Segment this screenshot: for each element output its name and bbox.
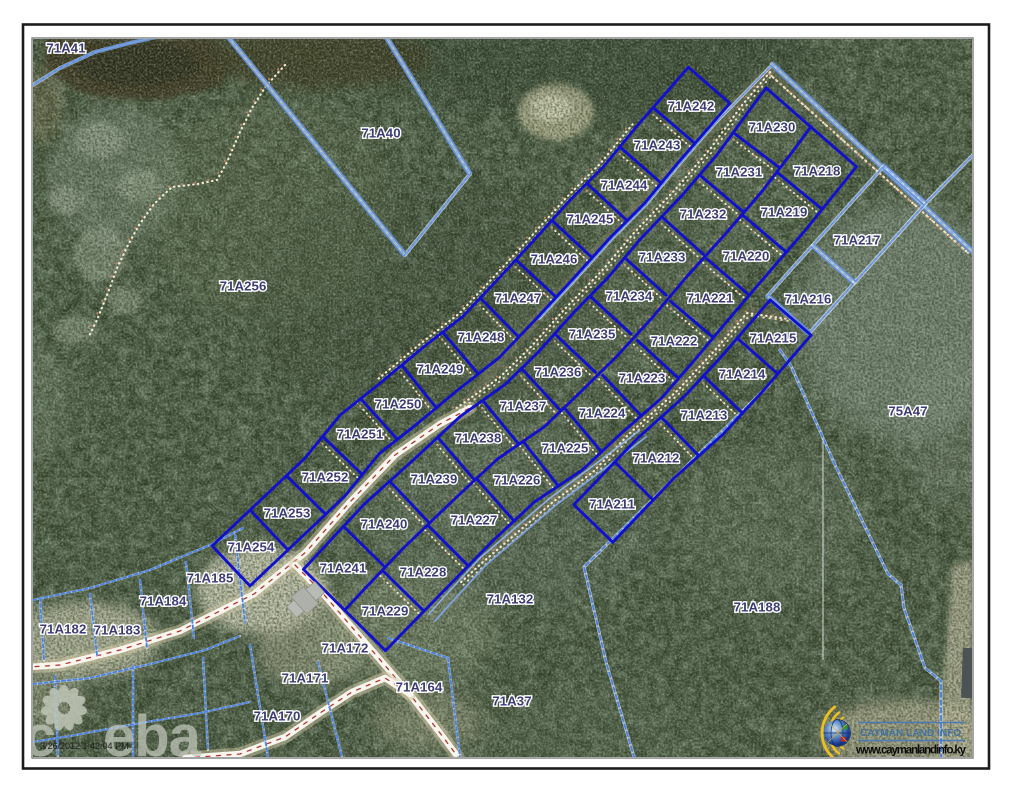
svg-text:71A222: 71A222 [651, 334, 698, 349]
svg-text:71A228: 71A228 [400, 565, 447, 580]
svg-text:71A253: 71A253 [264, 506, 311, 521]
svg-text:71A246: 71A246 [531, 252, 578, 267]
svg-text:71A256: 71A256 [220, 279, 267, 294]
svg-text:75A47: 75A47 [888, 404, 927, 419]
svg-text:71A250: 71A250 [375, 397, 422, 412]
svg-text:71A225: 71A225 [542, 441, 589, 456]
svg-text:71A234: 71A234 [606, 289, 653, 304]
svg-text:3/26/2012 1:42:04 PM: 3/26/2012 1:42:04 PM [40, 741, 129, 751]
svg-text:71A211: 71A211 [589, 497, 635, 512]
svg-text:71A235: 71A235 [569, 327, 616, 342]
svg-text:71A229: 71A229 [362, 604, 409, 619]
svg-text:71A224: 71A224 [579, 406, 626, 421]
svg-text:71A230: 71A230 [749, 120, 796, 135]
svg-text:71A237: 71A237 [500, 399, 547, 414]
svg-text:71A245: 71A245 [567, 212, 614, 227]
svg-text:71A183: 71A183 [94, 623, 141, 638]
svg-text:71A132: 71A132 [487, 592, 534, 607]
svg-text:71A182: 71A182 [40, 622, 87, 637]
svg-text:71A218: 71A218 [794, 164, 841, 179]
svg-text:71A217: 71A217 [834, 233, 881, 248]
svg-text:71A240: 71A240 [361, 517, 408, 532]
svg-text:71A184: 71A184 [140, 594, 187, 609]
svg-text:CAYMAN LAND INFO: CAYMAN LAND INFO [860, 728, 962, 739]
svg-text:71A41: 71A41 [46, 41, 85, 56]
svg-text:71A214: 71A214 [719, 367, 766, 382]
svg-text:71A243: 71A243 [634, 138, 681, 153]
svg-text:71A40: 71A40 [361, 126, 400, 141]
svg-text:71A164: 71A164 [396, 680, 443, 695]
svg-text:71A238: 71A238 [455, 431, 502, 446]
svg-text:71A220: 71A220 [723, 249, 770, 264]
svg-text:71A215: 71A215 [750, 331, 797, 346]
svg-text:71A226: 71A226 [494, 473, 541, 488]
svg-text:71A247: 71A247 [495, 291, 542, 306]
svg-text:71A227: 71A227 [451, 513, 498, 528]
svg-text:71A172: 71A172 [322, 641, 369, 656]
svg-text:71A219: 71A219 [761, 205, 808, 220]
svg-text:71A171: 71A171 [282, 671, 329, 686]
svg-text:71A170: 71A170 [254, 709, 301, 724]
svg-text:71A233: 71A233 [639, 250, 686, 265]
svg-text:71A188: 71A188 [734, 600, 781, 615]
svg-text:71A242: 71A242 [668, 99, 715, 114]
svg-text:71A223: 71A223 [619, 371, 666, 386]
svg-text:www.caymanlandinfo.ky: www.caymanlandinfo.ky [855, 745, 967, 757]
svg-text:71A252: 71A252 [302, 470, 349, 485]
svg-text:71A185: 71A185 [187, 571, 234, 586]
svg-text:71A254: 71A254 [228, 540, 275, 555]
svg-text:71A251: 71A251 [337, 427, 384, 442]
svg-text:71A244: 71A244 [601, 178, 648, 193]
svg-text:71A213: 71A213 [681, 408, 728, 423]
svg-text:71A216: 71A216 [785, 292, 832, 307]
svg-text:71A37: 71A37 [492, 694, 531, 709]
svg-text:71A232: 71A232 [680, 207, 727, 222]
svg-text:71A249: 71A249 [417, 362, 464, 377]
svg-text:71A236: 71A236 [535, 365, 582, 380]
svg-text:71A221: 71A221 [687, 291, 734, 306]
svg-text:71A241: 71A241 [320, 561, 367, 576]
svg-text:71A231: 71A231 [716, 165, 763, 180]
svg-text:71A248: 71A248 [458, 330, 505, 345]
svg-text:71A212: 71A212 [633, 451, 680, 466]
svg-text:71A239: 71A239 [411, 472, 458, 487]
